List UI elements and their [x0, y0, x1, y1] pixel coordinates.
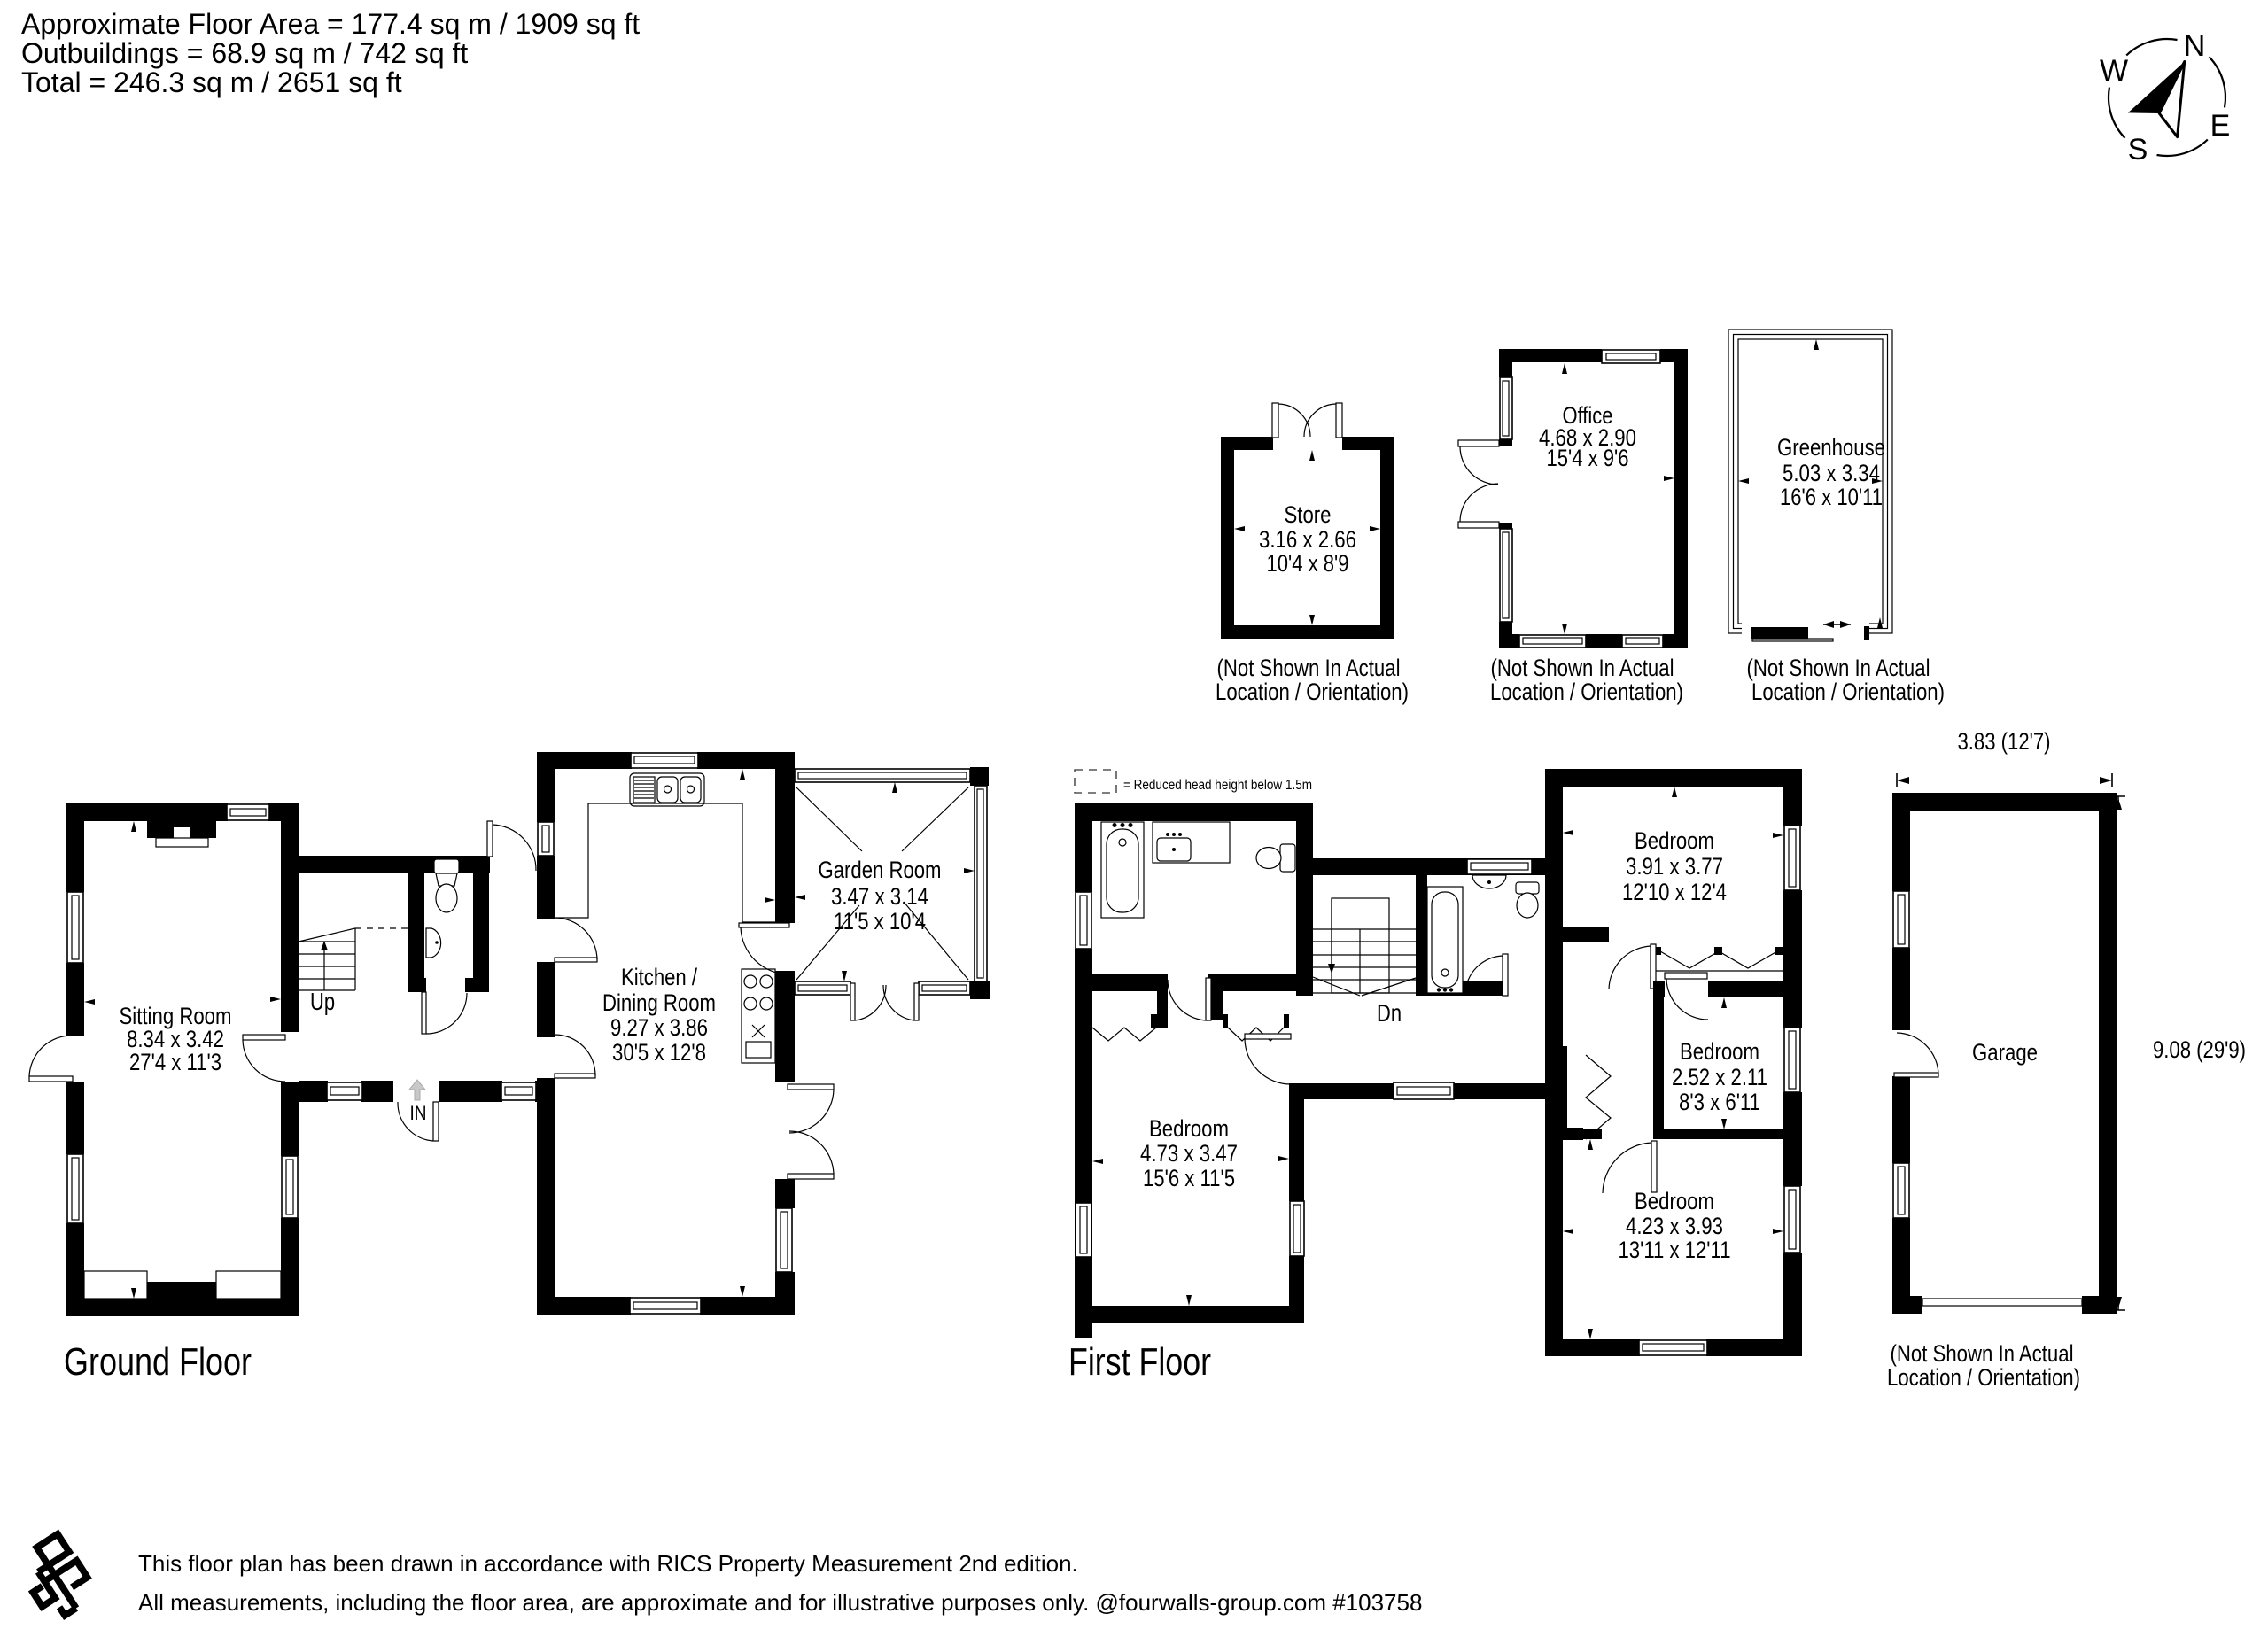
svg-text:Bedroom: Bedroom	[1149, 1115, 1229, 1142]
svg-text:27'4 x 11'3: 27'4 x 11'3	[129, 1049, 221, 1075]
svg-text:Garden Room: Garden Room	[819, 857, 942, 883]
svg-text:5.03 x 3.34: 5.03 x 3.34	[1783, 460, 1880, 486]
svg-text:3.83 (12'7): 3.83 (12'7)	[1958, 728, 2051, 755]
svg-text:Ground Floor: Ground Floor	[64, 1340, 252, 1384]
svg-text:9.08 (29'9): 9.08 (29'9)	[2153, 1036, 2246, 1063]
svg-text:3.91 x 3.77: 3.91 x 3.77	[1626, 853, 1723, 880]
svg-text:Location / Orientation): Location / Orientation)	[1216, 679, 1409, 705]
svg-text:8'3 x 6'11: 8'3 x 6'11	[1679, 1089, 1760, 1115]
svg-text:Store: Store	[1285, 501, 1332, 528]
svg-text:Location / Orientation): Location / Orientation)	[1490, 679, 1683, 705]
svg-text:First Floor: First Floor	[1068, 1340, 1211, 1384]
svg-text:Bedroom: Bedroom	[1680, 1038, 1759, 1065]
svg-text:4.23 x 3.93: 4.23 x 3.93	[1626, 1213, 1723, 1239]
svg-text:11'5 x 10'4: 11'5 x 10'4	[834, 908, 926, 935]
svg-text:E: E	[2210, 109, 2231, 143]
svg-text:15'4 x 9'6: 15'4 x 9'6	[1547, 445, 1629, 471]
svg-text:Garage: Garage	[1972, 1039, 2038, 1066]
svg-text:Up: Up	[310, 988, 335, 1015]
svg-text:16'6 x 10'11: 16'6 x 10'11	[1780, 484, 1883, 510]
svg-text:IN: IN	[410, 1102, 427, 1124]
svg-text:Location / Orientation): Location / Orientation)	[1751, 679, 1945, 705]
svg-text:Approximate Floor Area = 177.4: Approximate Floor Area = 177.4 sq m / 19…	[21, 8, 640, 40]
svg-text:S: S	[2128, 133, 2148, 167]
svg-text:Bedroom: Bedroom	[1635, 1188, 1714, 1214]
svg-text:(Not Shown In Actual: (Not Shown In Actual	[1491, 655, 1674, 681]
svg-text:Outbuildings = 68.9 sq m / 742: Outbuildings = 68.9 sq m / 742 sq ft	[21, 37, 468, 69]
svg-text:= Reduced head height below 1.: = Reduced head height below 1.5m	[1123, 778, 1312, 793]
svg-text:Dining Room: Dining Room	[602, 989, 716, 1016]
svg-text:Total = 246.3 sq m / 2651 sq f: Total = 246.3 sq m / 2651 sq ft	[21, 66, 402, 98]
svg-text:2.52 x 2.11: 2.52 x 2.11	[1672, 1064, 1767, 1090]
svg-text:N: N	[2184, 29, 2206, 63]
svg-text:(Not Shown In Actual: (Not Shown In Actual	[1891, 1340, 2074, 1367]
svg-text:This floor plan has been drawn: This floor plan has been drawn in accord…	[138, 1550, 1078, 1577]
svg-text:Bedroom: Bedroom	[1635, 827, 1714, 854]
svg-text:10'4 x 8'9: 10'4 x 8'9	[1267, 550, 1349, 577]
svg-text:4.73 x 3.47: 4.73 x 3.47	[1140, 1140, 1238, 1167]
svg-text:13'11 x 12'11: 13'11 x 12'11	[1619, 1237, 1731, 1263]
svg-text:Kitchen /: Kitchen /	[621, 964, 697, 990]
svg-text:9.27 x 3.86: 9.27 x 3.86	[610, 1014, 708, 1041]
svg-text:15'6 x 11'5: 15'6 x 11'5	[1143, 1165, 1235, 1191]
svg-text:3.47 x 3.14: 3.47 x 3.14	[831, 883, 928, 910]
svg-text:30'5 x 12'8: 30'5 x 12'8	[612, 1039, 706, 1066]
svg-text:3.16 x 2.66: 3.16 x 2.66	[1259, 526, 1356, 553]
svg-text:W: W	[2100, 54, 2128, 88]
svg-text:(Not Shown In Actual: (Not Shown In Actual	[1747, 655, 1930, 681]
svg-text:Greenhouse: Greenhouse	[1777, 434, 1885, 461]
svg-text:(Not Shown In Actual: (Not Shown In Actual	[1217, 655, 1401, 681]
svg-text:Location / Orientation): Location / Orientation)	[1887, 1364, 2080, 1391]
svg-text:All measurements, including th: All measurements, including the floor ar…	[138, 1589, 1422, 1616]
svg-text:Dn: Dn	[1377, 999, 1402, 1027]
svg-text:12'10 x 12'4: 12'10 x 12'4	[1622, 879, 1727, 905]
